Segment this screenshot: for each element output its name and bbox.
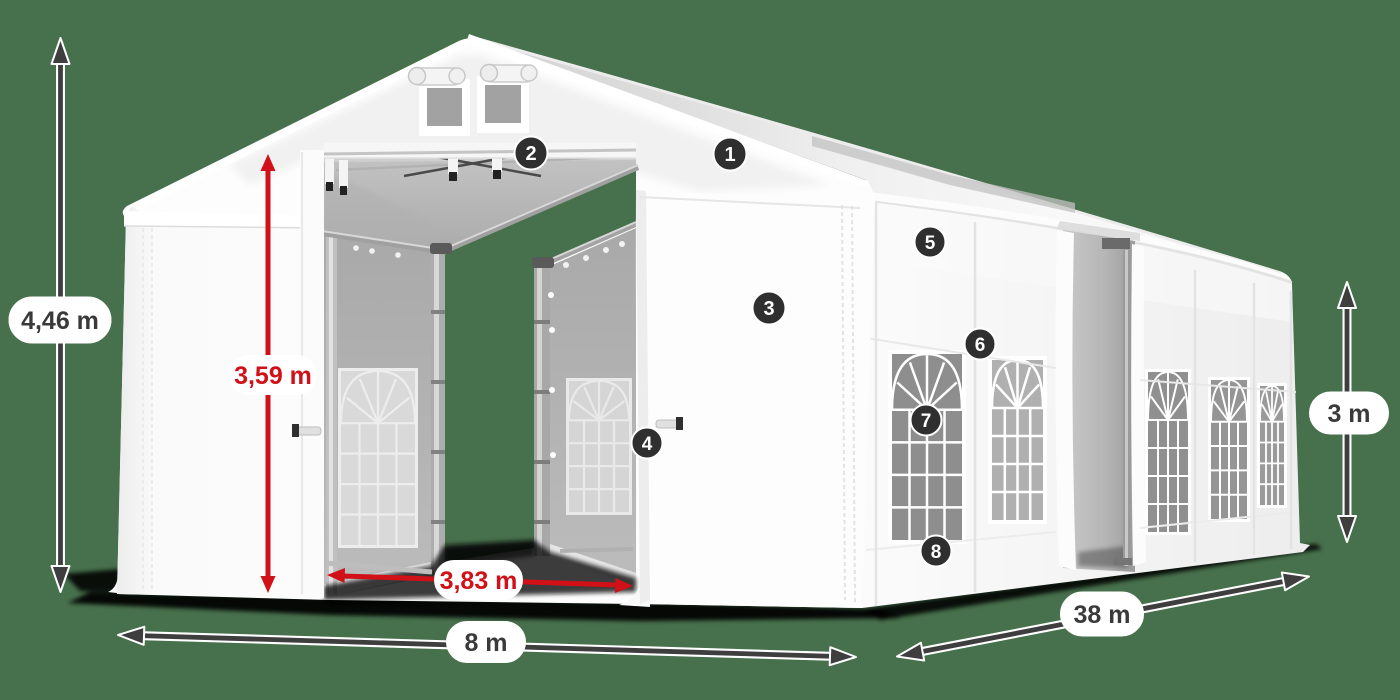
svg-text:3,83 m: 3,83 m [440, 567, 518, 595]
svg-text:3,59 m: 3,59 m [234, 362, 312, 390]
svg-text:7: 7 [921, 411, 932, 432]
svg-text:38 m: 38 m [1074, 601, 1131, 629]
svg-text:4: 4 [642, 434, 653, 455]
svg-text:6: 6 [975, 335, 986, 356]
svg-text:4,46 m: 4,46 m [21, 307, 99, 335]
svg-text:5: 5 [925, 233, 936, 254]
svg-text:3 m: 3 m [1327, 400, 1370, 428]
svg-text:3: 3 [763, 298, 774, 320]
svg-text:2: 2 [525, 143, 536, 165]
svg-text:8: 8 [931, 542, 942, 563]
svg-text:1: 1 [724, 144, 735, 166]
svg-text:8 m: 8 m [464, 629, 507, 657]
